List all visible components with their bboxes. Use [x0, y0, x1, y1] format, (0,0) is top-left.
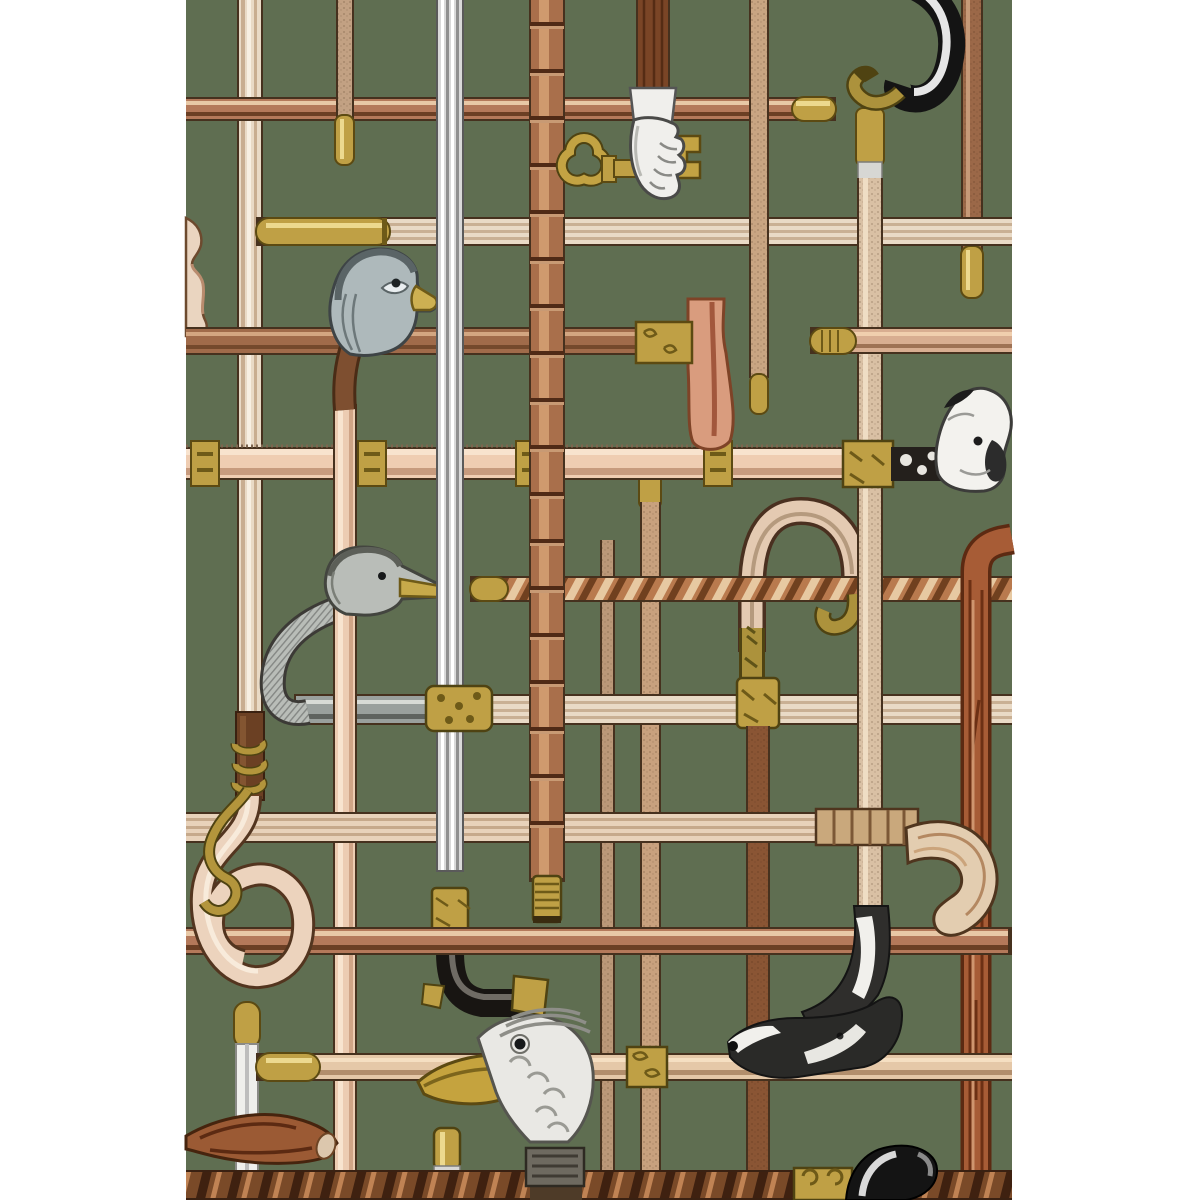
rod-horizontal-6 [256, 1047, 1012, 1087]
rod-horizontal-1 [186, 97, 836, 121]
pheasant-eye [392, 279, 401, 288]
rod-stub-top [335, 0, 354, 165]
goose-eye [378, 572, 386, 580]
greyhound-nose [728, 1041, 738, 1051]
pattern-canvas [0, 0, 1200, 1200]
parrot-eye [515, 1039, 526, 1050]
goose-collar [426, 686, 492, 731]
rod-horizontal-3b [810, 327, 1012, 354]
rod-horizontal-4 [186, 441, 850, 486]
rod-hanging-center [749, 0, 769, 414]
spaniel-eye [974, 437, 983, 446]
axe-collar [636, 322, 692, 363]
wallpaper-panel [0, 0, 1200, 1200]
rod-horizontal-2 [256, 217, 1012, 246]
bamboo-cane [529, 0, 565, 923]
